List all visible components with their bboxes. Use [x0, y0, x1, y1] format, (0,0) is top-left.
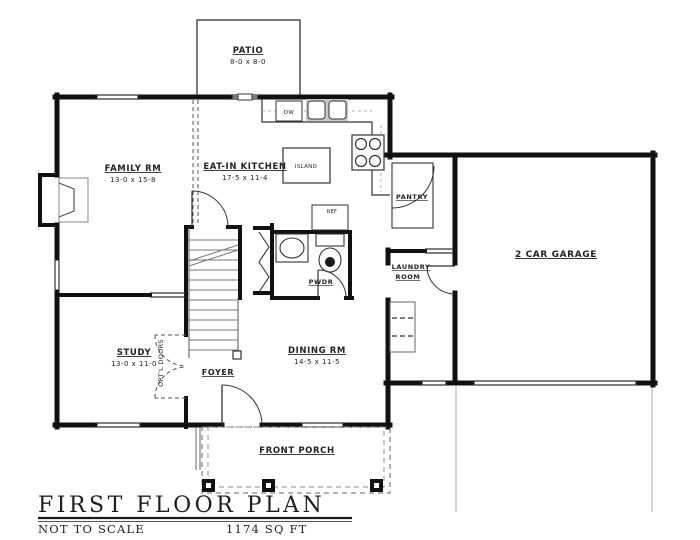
- floor-plan-page: PATIO 8-0 x 8-0 FAMILY RM 13-0 x 15-8 EA…: [0, 0, 700, 540]
- toilet: [316, 234, 344, 272]
- vanity-sink: [276, 234, 308, 262]
- cased-opening-dashes: [193, 100, 198, 225]
- floor-plan-drawing: PATIO 8-0 x 8-0 FAMILY RM 13-0 x 15-8 EA…: [0, 0, 700, 540]
- kitchen-sink: [306, 99, 348, 121]
- pantry-label: PANTRY: [396, 193, 428, 201]
- kitchen-label: EAT-IN KITCHEN: [203, 162, 286, 172]
- optl-doors-label: OPT'L DOORS: [157, 339, 165, 387]
- laundry-label-line1: LAUNDRY: [392, 263, 431, 271]
- stair-break-line: [189, 245, 238, 266]
- interior-walls: [57, 225, 425, 427]
- family-room-label: FAMILY RM: [105, 164, 162, 174]
- laundry-garage-door: [427, 266, 455, 294]
- front-porch: [196, 427, 390, 493]
- study-dims: 13-0 x 11-0: [111, 360, 157, 368]
- foyer-label: FOYER: [202, 368, 234, 377]
- stair-treads: [189, 240, 238, 350]
- porch-posts: [202, 479, 383, 492]
- island-label: ISLAND: [295, 164, 317, 170]
- area-note: 1174 SQ FT: [226, 522, 308, 536]
- front-door: [222, 385, 262, 425]
- newel-post: [233, 351, 241, 359]
- scale-note: NOT TO SCALE: [38, 522, 145, 536]
- windows: [55, 94, 638, 427]
- kitchen-dims: 17-5 x 11-4: [222, 174, 268, 182]
- staircase: [189, 191, 241, 359]
- patio-label: PATIO: [233, 46, 264, 56]
- laundry-closet-shelves: [390, 302, 415, 352]
- patio-dims: 8-0 x 8-0: [230, 58, 266, 66]
- closet-bifold-doors: [259, 232, 269, 292]
- title-block: FIRST FLOOR PLAN NOT TO SCALE 1174 SQ FT: [38, 493, 352, 536]
- plan-title: FIRST FLOOR PLAN: [38, 493, 325, 518]
- study-label: STUDY: [117, 348, 152, 358]
- fireplace: [40, 175, 88, 225]
- dining-room-dims: 14-5 x 11-5: [294, 358, 340, 366]
- driveway-lines: [456, 386, 652, 512]
- dining-room-label: DINING RM: [288, 346, 346, 356]
- stove: [352, 135, 384, 170]
- front-porch-label: FRONT PORCH: [259, 446, 334, 456]
- laundry-label-line2: ROOM: [396, 273, 421, 281]
- refrigerator-label: REF: [327, 209, 337, 215]
- powder-room: [276, 234, 346, 298]
- family-room-dims: 13-0 x 15-8: [110, 176, 156, 184]
- dishwasher-label: DW: [284, 110, 295, 116]
- stair-top-door: [192, 191, 228, 227]
- powder-room-label: PWDR: [309, 278, 334, 286]
- garage-label: 2 CAR GARAGE: [515, 250, 597, 260]
